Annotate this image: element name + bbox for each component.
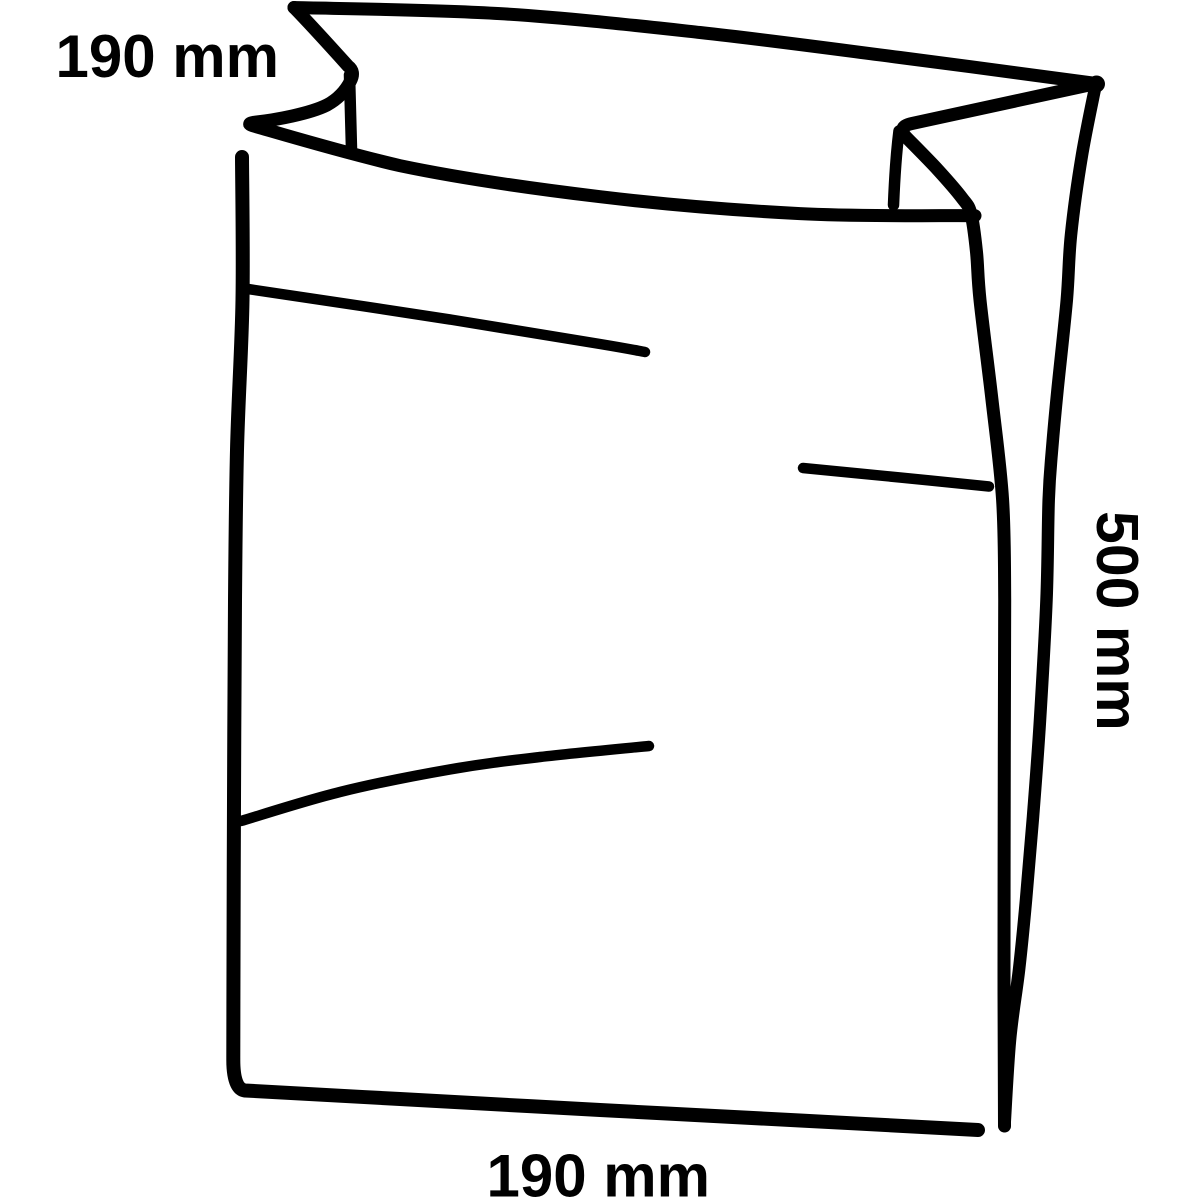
svg-text:500 mm: 500 mm bbox=[1084, 511, 1150, 731]
svg-text:190 mm: 190 mm bbox=[56, 23, 279, 90]
svg-text:190 mm: 190 mm bbox=[487, 1143, 710, 1200]
